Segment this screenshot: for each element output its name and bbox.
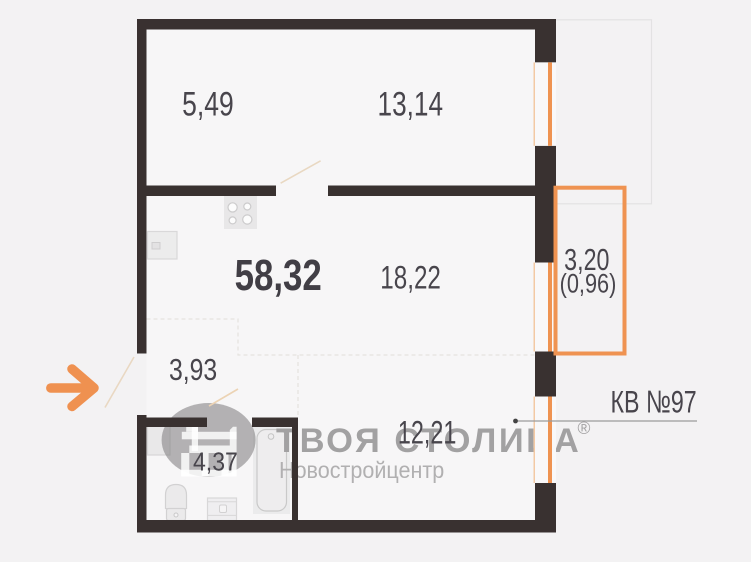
svg-text:(0,96): (0,96) [560,270,617,300]
svg-text:5,49: 5,49 [182,85,234,123]
svg-text:Новостройцентр: Новостройцентр [279,457,444,483]
svg-text:4,37: 4,37 [193,448,238,476]
svg-text:КВ №97: КВ №97 [611,384,697,419]
svg-text:3,93: 3,93 [169,352,217,386]
svg-text:12,21: 12,21 [398,415,456,450]
svg-text:13,14: 13,14 [378,86,443,123]
svg-text:58,32: 58,32 [235,251,322,300]
svg-text:18,22: 18,22 [380,260,441,296]
